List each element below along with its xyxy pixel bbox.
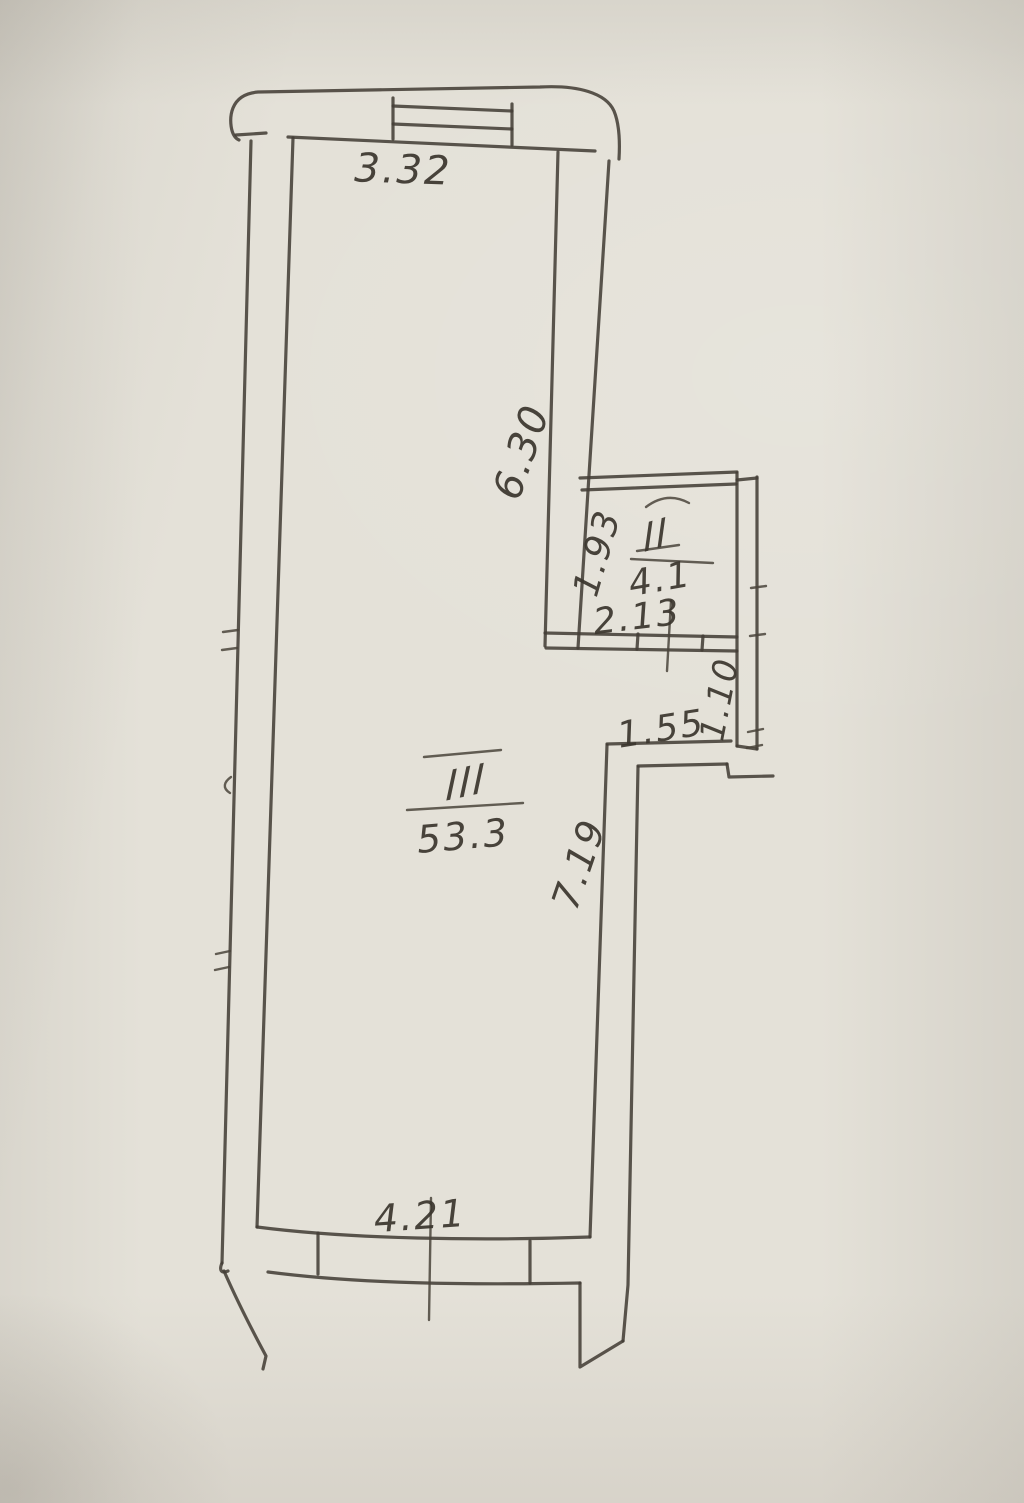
wall-left-bottom-diagonal [224,1271,266,1369]
left-wall-tick-2 [222,648,237,650]
wall-bottom-outer [268,1272,580,1284]
wall-top-left-cap [236,133,266,135]
room2-door-arc [646,498,689,507]
top-window-pane-line-1 [393,106,512,111]
right-wall-tick-1 [751,586,766,588]
wall-ticks-group [215,586,766,970]
room2-number-label: II [643,509,670,562]
dim-nook-height: 1.10 [692,654,747,744]
wall-nook-bottom-inner [638,764,727,766]
room3-number-label: III [445,754,487,811]
top-window-pane-line-2 [393,124,512,129]
dim-room2-height: 1.93 [566,505,630,601]
dim-top-width: 3.32 [354,145,453,194]
dim-bottom-width: 4.21 [372,1191,467,1241]
right-wall-tick-3 [748,729,763,732]
wall-step-stub [727,764,773,777]
left-wall-tick-1 [223,630,238,632]
floor-plan-drawing: 3.32 6.30 1.93 II 4.1 2.13 1.55 1.10 III… [0,0,1024,1503]
scanned-floor-plan-page: 3.32 6.30 1.93 II 4.1 2.13 1.55 1.10 III… [0,0,1024,1503]
left-wall-tick-3 [225,777,231,793]
right-wall-tick-4 [747,745,762,748]
left-wall-tick-5 [215,967,229,970]
wall-left-outer [222,141,251,1263]
room3-area-label: 53.3 [415,810,511,862]
left-wall-tick-4 [216,951,230,954]
wall-room2-bottom-band-bottom [546,648,737,651]
room3-number-overline [424,750,501,757]
labels-group: 3.32 6.30 1.93 II 4.1 2.13 1.55 1.10 III… [354,145,748,1241]
wall-room2-top-outer [580,472,737,478]
wall-bottom-right-notch [580,1283,623,1367]
right-wall-tick-2 [750,634,765,636]
wall-right-lower-inner [590,745,607,1237]
wall-left-inner [257,138,293,1227]
room2-band-divider-2 [702,636,703,650]
wall-right-lower-outer [623,767,638,1341]
wall-right-upper-inner [545,152,558,646]
wall-room2-top-inner [582,484,736,490]
wall-right-outer-top-cap [737,478,757,480]
